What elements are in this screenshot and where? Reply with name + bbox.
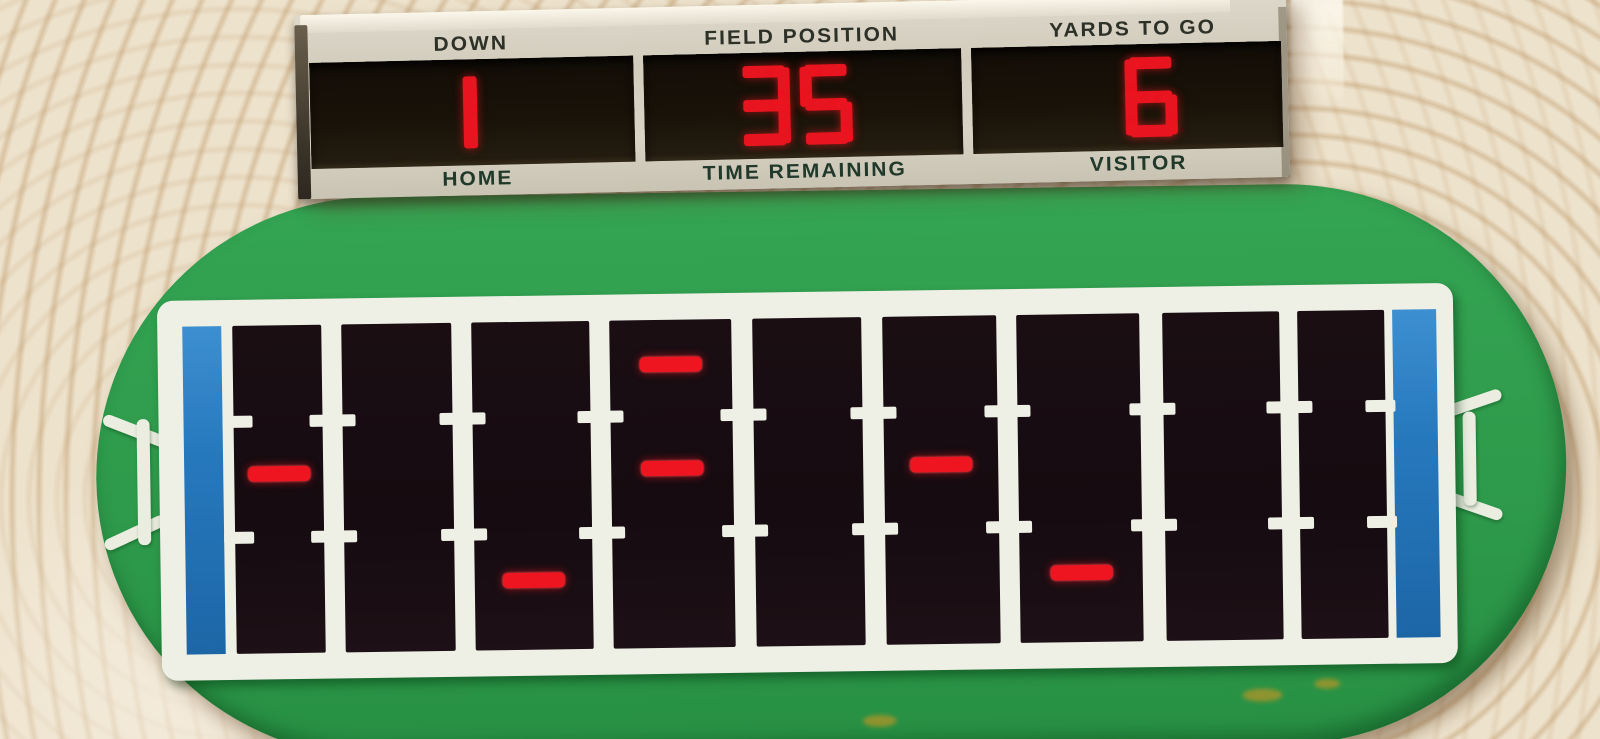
yard-column-1 — [232, 325, 326, 654]
hash-tick — [309, 414, 355, 427]
label-field-position: FIELD POSITION — [641, 22, 961, 52]
yard-column-7 — [1016, 313, 1144, 643]
stadium-turf-oval — [92, 180, 1570, 739]
hash-tick — [984, 405, 1030, 418]
hash-tick — [722, 524, 768, 537]
label-yards-to-go: YARDS TO GO — [972, 14, 1292, 44]
goalpost-left-upright-bottom — [103, 514, 168, 553]
led-segment — [744, 133, 786, 146]
field-border-frame — [157, 283, 1458, 681]
scoreboard: DOWN FIELD POSITION YARDS TO GO HOME TIM… — [294, 0, 1290, 199]
endzone-right — [1392, 309, 1441, 638]
yard-column-6 — [882, 315, 1001, 645]
goalpost-left-upright-top — [101, 413, 167, 448]
hash-tick — [986, 521, 1032, 534]
player-led — [910, 456, 972, 472]
hash-tick — [577, 410, 623, 423]
led-display-down — [438, 72, 502, 153]
led-display-yards-to-go — [1119, 56, 1183, 137]
led-digit-5 — [799, 64, 853, 145]
yard-column-2 — [341, 323, 456, 653]
hash-tick — [1129, 403, 1175, 416]
led-window-down — [309, 56, 635, 169]
led-segment — [1131, 124, 1173, 137]
player-led — [640, 356, 702, 372]
hash-tick — [441, 528, 487, 541]
hash-tick — [1130, 519, 1176, 532]
label-visitor: VISITOR — [978, 149, 1298, 179]
led-display-field-position — [732, 64, 858, 147]
device-face: DOWN FIELD POSITION YARDS TO GO HOME TIM… — [0, 0, 1600, 739]
yard-column-3 — [471, 321, 594, 651]
player-led — [503, 572, 565, 588]
endzone-left — [182, 326, 226, 655]
hash-tick — [1367, 516, 1397, 528]
hash-tick — [439, 412, 485, 425]
led-digit-6 — [1124, 56, 1178, 137]
goalpost-right-crossbar — [1463, 412, 1477, 506]
led-window-field-position — [643, 48, 963, 161]
hash-tick — [850, 407, 896, 420]
hash-tick — [579, 526, 625, 539]
hash-tick — [1266, 401, 1312, 414]
yard-column-9 — [1297, 310, 1389, 639]
player-led — [248, 465, 310, 481]
label-time-remaining: TIME REMAINING — [645, 157, 965, 187]
led-digit-1 — [443, 72, 497, 153]
yard-column-8 — [1162, 311, 1284, 641]
led-digit-3 — [737, 65, 791, 146]
hash-tick — [222, 416, 252, 428]
handheld-football-game: DOWN FIELD POSITION YARDS TO GO HOME TIM… — [0, 0, 1600, 739]
hash-tick — [311, 530, 357, 543]
led-segment — [463, 76, 479, 148]
casing-highlight-strip — [1291, 0, 1345, 111]
hash-tick — [224, 532, 254, 544]
label-down: DOWN — [311, 29, 631, 59]
led-window-yards-to-go — [971, 41, 1283, 154]
playing-field — [182, 307, 1441, 656]
hash-tick — [1365, 400, 1395, 412]
hash-tick — [1268, 517, 1314, 530]
player-led — [1050, 564, 1112, 580]
yard-column-5 — [752, 317, 866, 646]
label-home: HOME — [318, 164, 638, 194]
led-segment — [806, 132, 848, 145]
hash-tick — [720, 408, 766, 421]
goalpost-left-crossbar — [136, 419, 151, 545]
scoreboard-left-edge — [294, 25, 311, 199]
player-led — [641, 460, 703, 476]
hash-tick — [852, 523, 898, 536]
